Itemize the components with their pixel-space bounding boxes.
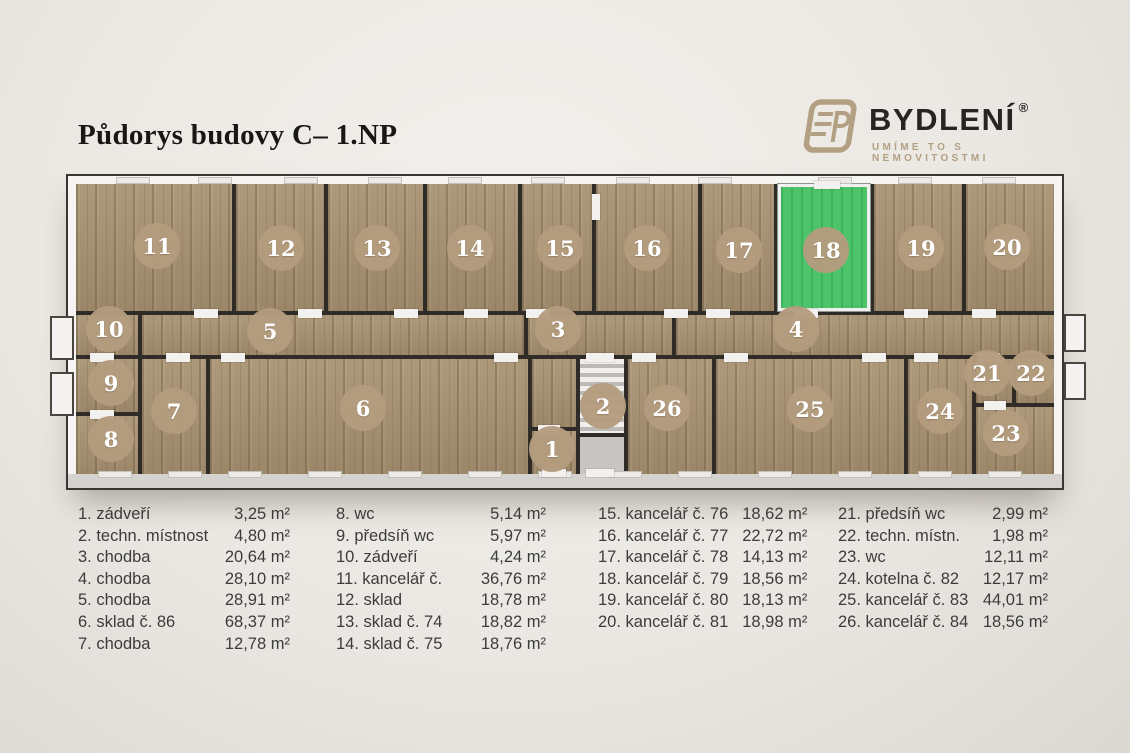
window bbox=[168, 471, 202, 478]
legend-room-label: 4. chodba bbox=[78, 569, 150, 591]
legend-row: 4. chodba28,10 m² bbox=[78, 569, 290, 591]
legend-room-area: 22,72 m² bbox=[742, 526, 807, 548]
legend-room-label: 14. sklad č. 75 bbox=[336, 634, 442, 656]
window bbox=[898, 177, 932, 184]
legend-room-area: 1,98 m² bbox=[992, 526, 1048, 548]
legend-room-area: 18,56 m² bbox=[742, 569, 807, 591]
legend-room-area: 12,17 m² bbox=[983, 569, 1048, 591]
legend-room-area: 3,25 m² bbox=[234, 504, 290, 526]
legend-row: 24. kotelna č. 8212,17 m² bbox=[838, 569, 1048, 591]
bydleni-logo-icon bbox=[795, 96, 861, 158]
legend-room-label: 2. techn. místnost bbox=[78, 526, 208, 548]
legend-room-label: 5. chodba bbox=[78, 590, 150, 612]
door-opening bbox=[194, 309, 218, 318]
window bbox=[468, 471, 502, 478]
legend-room-label: 16. kancelář č. 77 bbox=[598, 526, 728, 548]
room-26-badge: 26 bbox=[644, 385, 690, 431]
legend-room-area: 18,98 m² bbox=[742, 612, 807, 634]
window bbox=[368, 177, 402, 184]
door-opening bbox=[221, 353, 245, 362]
room-21-badge: 21 bbox=[964, 350, 1010, 396]
legend-room-label: 10. zádveří bbox=[336, 547, 418, 569]
bydleni-logo-tagline: UMÍME TO S NEMOVITOSTMI bbox=[872, 142, 1065, 164]
legend-row: 22. techn. místn.1,98 m² bbox=[838, 526, 1048, 548]
room-9-badge: 9 bbox=[88, 360, 134, 406]
legend-row: 11. kancelář č.36,76 m² bbox=[336, 569, 546, 591]
door-opening bbox=[706, 309, 730, 318]
legend-room-area: 18,62 m² bbox=[742, 504, 807, 526]
legend-row: 21. předsíň wc2,99 m² bbox=[838, 504, 1048, 526]
window bbox=[228, 471, 262, 478]
legend-room-label: 7. chodba bbox=[78, 634, 150, 656]
legend-row: 7. chodba12,78 m² bbox=[78, 634, 290, 656]
room-12-badge: 12 bbox=[258, 225, 304, 271]
room-19-badge: 19 bbox=[898, 225, 944, 271]
legend-row: 26. kancelář č. 8418,56 m² bbox=[838, 612, 1048, 634]
room-5-badge: 5 bbox=[247, 308, 293, 354]
corridor-segment bbox=[532, 359, 576, 427]
legend-room-label: 6. sklad č. 86 bbox=[78, 612, 175, 634]
legend-column-2: 8. wc5,14 m²9. předsíň wc5,97 m²10. zádv… bbox=[336, 504, 546, 655]
legend-room-area: 12,78 m² bbox=[225, 634, 290, 656]
page: Půdorys budovy C– 1.NP BYDLENÍ® UMÍME TO… bbox=[0, 0, 1130, 753]
entrance-porch bbox=[50, 316, 74, 360]
door-opening bbox=[586, 469, 614, 477]
room-13-badge: 13 bbox=[354, 225, 400, 271]
legend-column-1: 1. zádveří3,25 m²2. techn. místnost4,80 … bbox=[78, 504, 290, 655]
window bbox=[838, 471, 872, 478]
legend-row: 3. chodba20,64 m² bbox=[78, 547, 290, 569]
room-24-badge: 24 bbox=[917, 388, 963, 434]
legend-room-label: 24. kotelna č. 82 bbox=[838, 569, 959, 591]
legend-room-label: 22. techn. místn. bbox=[838, 526, 960, 548]
room-5[interactable] bbox=[142, 315, 524, 355]
window bbox=[918, 471, 952, 478]
legend-room-area: 28,91 m² bbox=[225, 590, 290, 612]
legend-row: 8. wc5,14 m² bbox=[336, 504, 546, 526]
window bbox=[116, 177, 150, 184]
legend-room-label: 1. zádveří bbox=[78, 504, 150, 526]
door-opening bbox=[586, 353, 614, 362]
legend-room-label: 21. předsíň wc bbox=[838, 504, 945, 526]
door-opening bbox=[166, 353, 190, 362]
logo-brand-text: BYDLENÍ bbox=[869, 102, 1016, 137]
legend-room-label: 13. sklad č. 74 bbox=[336, 612, 442, 634]
legend-room-label: 12. sklad bbox=[336, 590, 402, 612]
legend-room-label: 26. kancelář č. 84 bbox=[838, 612, 968, 634]
legend-room-label: 18. kancelář č. 79 bbox=[598, 569, 728, 591]
room-4[interactable] bbox=[676, 315, 1054, 355]
legend-row: 14. sklad č. 7518,76 m² bbox=[336, 634, 546, 656]
room-3-badge: 3 bbox=[535, 306, 581, 352]
door-opening bbox=[464, 309, 488, 318]
legend-row: 17. kancelář č. 7814,13 m² bbox=[598, 547, 802, 569]
floor-plan: 1234567891011121314151617181920212223242… bbox=[66, 174, 1064, 490]
room-20-badge: 20 bbox=[984, 224, 1030, 270]
legend-room-area: 44,01 m² bbox=[983, 590, 1048, 612]
legend-room-area: 18,78 m² bbox=[481, 590, 546, 612]
legend-room-area: 14,13 m² bbox=[742, 547, 807, 569]
door-opening bbox=[862, 353, 886, 362]
door-opening bbox=[394, 309, 418, 318]
room-1-badge: 1 bbox=[529, 426, 575, 472]
legend-row: 12. sklad18,78 m² bbox=[336, 590, 546, 612]
legend-column-3: 15. kancelář č. 7618,62 m²16. kancelář č… bbox=[598, 504, 802, 634]
legend-room-label: 8. wc bbox=[336, 504, 375, 526]
window bbox=[982, 177, 1016, 184]
legend-room-area: 4,24 m² bbox=[490, 547, 546, 569]
room-16-badge: 16 bbox=[624, 225, 670, 271]
window bbox=[308, 471, 342, 478]
room-6-badge: 6 bbox=[340, 385, 386, 431]
legend-row: 16. kancelář č. 7722,72 m² bbox=[598, 526, 802, 548]
room-22-badge: 22 bbox=[1008, 350, 1054, 396]
room-23-badge: 23 bbox=[983, 410, 1029, 456]
entrance-porch bbox=[1064, 314, 1086, 352]
door-opening bbox=[592, 194, 600, 220]
legend-row: 15. kancelář č. 7618,62 m² bbox=[598, 504, 802, 526]
legend-room-area: 28,10 m² bbox=[225, 569, 290, 591]
legend-row: 23. wc12,11 m² bbox=[838, 547, 1048, 569]
legend-room-label: 11. kancelář č. bbox=[336, 569, 442, 591]
door-opening bbox=[724, 353, 748, 362]
room-10-badge: 10 bbox=[86, 306, 132, 352]
window bbox=[284, 177, 318, 184]
legend-room-area: 18,13 m² bbox=[742, 590, 807, 612]
room-7-badge: 7 bbox=[151, 388, 197, 434]
room-15-badge: 15 bbox=[537, 225, 583, 271]
legend-room-area: 18,82 m² bbox=[481, 612, 546, 634]
legend-room-label: 9. předsíň wc bbox=[336, 526, 434, 548]
window bbox=[198, 177, 232, 184]
room-2-badge: 2 bbox=[580, 383, 626, 429]
legend-row: 2. techn. místnost4,80 m² bbox=[78, 526, 290, 548]
window bbox=[698, 177, 732, 184]
room-4-badge: 4 bbox=[773, 306, 819, 352]
legend-room-area: 18,76 m² bbox=[481, 634, 546, 656]
legend-room-area: 4,80 m² bbox=[234, 526, 290, 548]
window bbox=[98, 471, 132, 478]
legend-room-label: 23. wc bbox=[838, 547, 886, 569]
legend-row: 5. chodba28,91 m² bbox=[78, 590, 290, 612]
legend-row: 13. sklad č. 7418,82 m² bbox=[336, 612, 546, 634]
floor-plan-core: 1234567891011121314151617181920212223242… bbox=[76, 184, 1054, 474]
bydleni-logo-wordmark: BYDLENÍ® bbox=[869, 100, 1030, 138]
door-opening bbox=[664, 309, 688, 318]
legend-room-area: 5,97 m² bbox=[490, 526, 546, 548]
door-opening bbox=[914, 353, 938, 362]
legend-room-label: 17. kancelář č. 78 bbox=[598, 547, 728, 569]
door-opening bbox=[298, 309, 322, 318]
entrance-porch bbox=[50, 372, 74, 416]
window bbox=[388, 471, 422, 478]
legend-room-area: 12,11 m² bbox=[984, 547, 1048, 569]
window bbox=[616, 177, 650, 184]
door-opening bbox=[904, 309, 928, 318]
window bbox=[678, 471, 712, 478]
door-opening bbox=[814, 181, 840, 189]
legend-room-label: 15. kancelář č. 76 bbox=[598, 504, 728, 526]
window bbox=[758, 471, 792, 478]
legend-row: 9. předsíň wc5,97 m² bbox=[336, 526, 546, 548]
door-opening bbox=[632, 353, 656, 362]
window bbox=[531, 177, 565, 184]
legend-room-area: 2,99 m² bbox=[992, 504, 1048, 526]
legend-row: 20. kancelář č. 8118,98 m² bbox=[598, 612, 802, 634]
door-opening bbox=[494, 353, 518, 362]
legend-room-label: 19. kancelář č. 80 bbox=[598, 590, 728, 612]
legend-row: 18. kancelář č. 7918,56 m² bbox=[598, 569, 802, 591]
legend-column-4: 21. předsíň wc2,99 m²22. techn. místn.1,… bbox=[838, 504, 1048, 634]
door-opening bbox=[984, 401, 1006, 410]
legend-row: 19. kancelář č. 8018,13 m² bbox=[598, 590, 802, 612]
legend-row: 1. zádveří3,25 m² bbox=[78, 504, 290, 526]
legend-room-area: 68,37 m² bbox=[225, 612, 290, 634]
room-14-badge: 14 bbox=[447, 225, 493, 271]
bydleni-logo: BYDLENÍ® UMÍME TO S NEMOVITOSTMI bbox=[795, 96, 1065, 160]
legend-room-label: 20. kancelář č. 81 bbox=[598, 612, 728, 634]
legend-row: 10. zádveří4,24 m² bbox=[336, 547, 546, 569]
legend-room-area: 5,14 m² bbox=[490, 504, 546, 526]
legend-room-area: 36,76 m² bbox=[481, 569, 546, 591]
room-25-badge: 25 bbox=[787, 386, 833, 432]
legend-room-label: 25. kancelář č. 83 bbox=[838, 590, 968, 612]
window bbox=[448, 177, 482, 184]
room-18-badge: 18 bbox=[803, 227, 849, 273]
registered-trademark-symbol: ® bbox=[1019, 100, 1030, 115]
room-11-badge: 11 bbox=[134, 223, 180, 269]
page-title: Půdorys budovy C– 1.NP bbox=[78, 119, 397, 152]
window bbox=[988, 471, 1022, 478]
door-opening bbox=[972, 309, 996, 318]
legend-row: 25. kancelář č. 8344,01 m² bbox=[838, 590, 1048, 612]
legend-room-label: 3. chodba bbox=[78, 547, 150, 569]
legend-room-area: 18,56 m² bbox=[983, 612, 1048, 634]
entrance-porch bbox=[1064, 362, 1086, 400]
legend-row: 6. sklad č. 8668,37 m² bbox=[78, 612, 290, 634]
room-17-badge: 17 bbox=[716, 227, 762, 273]
room-8-badge: 8 bbox=[88, 416, 134, 462]
legend-room-area: 20,64 m² bbox=[225, 547, 290, 569]
